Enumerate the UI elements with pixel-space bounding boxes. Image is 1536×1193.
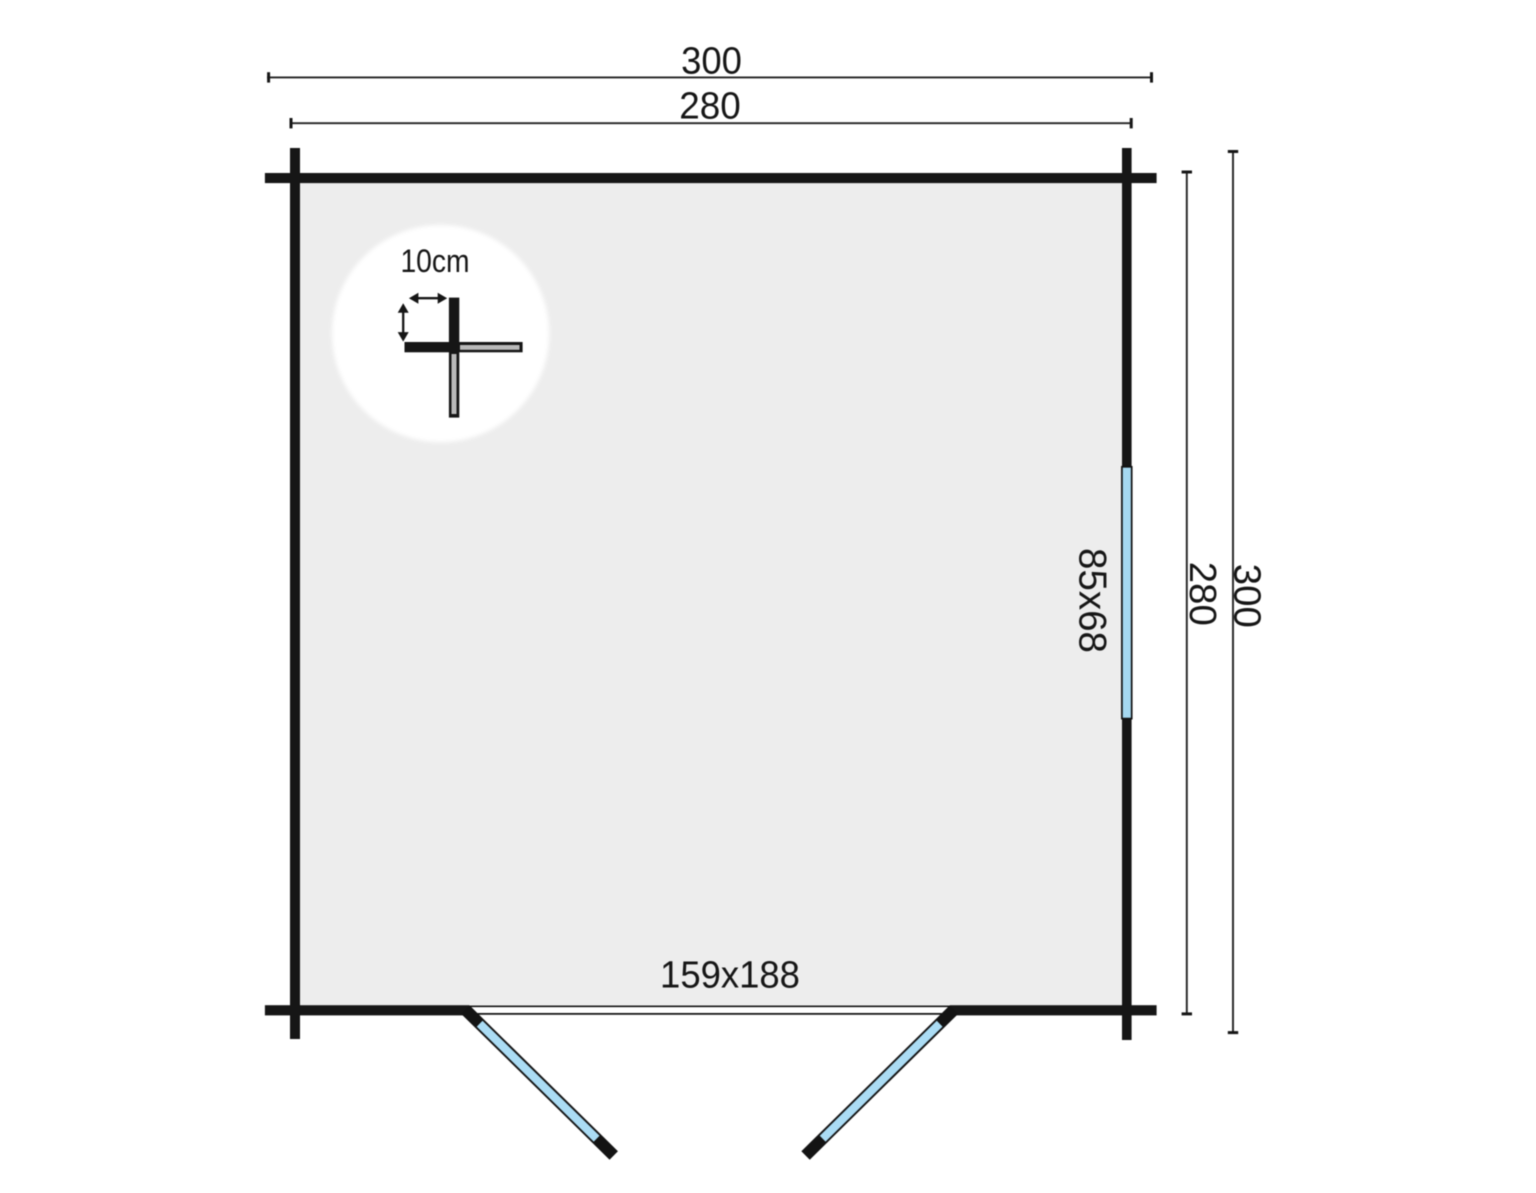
svg-text:300: 300 — [1226, 564, 1269, 628]
svg-text:85x68: 85x68 — [1071, 548, 1114, 653]
svg-text:159x188: 159x188 — [660, 953, 800, 996]
svg-text:10cm: 10cm — [400, 243, 469, 279]
svg-text:280: 280 — [1181, 562, 1224, 626]
svg-text:300: 300 — [681, 39, 742, 82]
svg-text:280: 280 — [679, 84, 740, 127]
